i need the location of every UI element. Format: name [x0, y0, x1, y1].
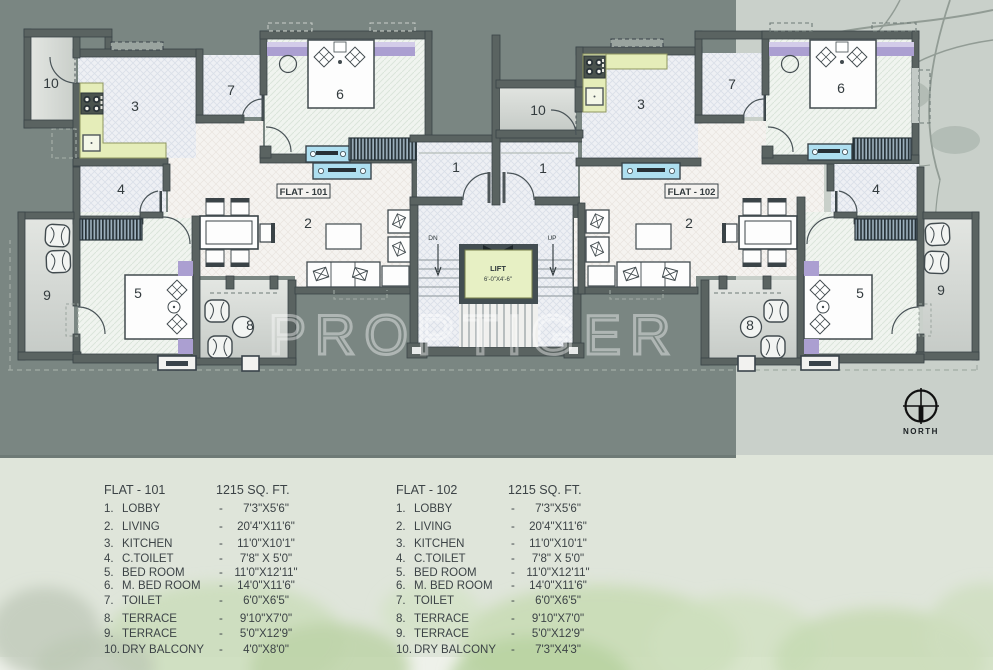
svg-text:5.: 5.	[396, 567, 406, 579]
svg-text:20'4"X11'6": 20'4"X11'6"	[237, 521, 295, 533]
svg-text:-: -	[511, 580, 515, 592]
svg-text:-: -	[219, 644, 223, 656]
svg-text:FLAT - 101: FLAT - 101	[280, 187, 329, 198]
svg-text:7'3"X5'6": 7'3"X5'6"	[535, 503, 581, 515]
svg-text:-: -	[219, 628, 223, 640]
svg-text:7'3"X5'6": 7'3"X5'6"	[243, 503, 289, 515]
svg-text:LOBBY: LOBBY	[414, 503, 453, 515]
svg-text:20'4"X11'6": 20'4"X11'6"	[529, 521, 587, 533]
svg-text:7.: 7.	[396, 595, 406, 607]
svg-text:5: 5	[856, 285, 864, 301]
svg-text:3: 3	[637, 96, 645, 112]
svg-text:8: 8	[746, 317, 754, 333]
svg-text:1: 1	[452, 159, 460, 175]
svg-text:9'10"X7'0": 9'10"X7'0"	[240, 613, 292, 625]
svg-text:11'0"X10'1": 11'0"X10'1"	[237, 538, 295, 550]
svg-text:-: -	[511, 628, 515, 640]
svg-text:-: -	[219, 613, 223, 625]
svg-text:BED ROOM: BED ROOM	[414, 567, 477, 579]
svg-text:-: -	[511, 553, 515, 565]
svg-text:DN: DN	[428, 235, 438, 242]
svg-text:1.: 1.	[104, 503, 114, 515]
svg-text:9'10"X7'0": 9'10"X7'0"	[532, 613, 584, 625]
svg-text:TERRACE: TERRACE	[414, 628, 469, 640]
svg-text:14'0"X11'6": 14'0"X11'6"	[237, 580, 295, 592]
svg-text:1.: 1.	[396, 503, 406, 515]
svg-text:3: 3	[131, 98, 139, 114]
svg-text:10.: 10.	[396, 644, 412, 656]
svg-text:1215 SQ. FT.: 1215 SQ. FT.	[216, 483, 290, 497]
svg-text:3.: 3.	[396, 538, 406, 550]
svg-text:-: -	[219, 580, 223, 592]
svg-text:10: 10	[43, 75, 59, 91]
svg-text:TOILET: TOILET	[414, 595, 454, 607]
svg-text:KITCHEN: KITCHEN	[414, 538, 464, 550]
svg-text:9.: 9.	[104, 628, 114, 640]
svg-text:6'0"X6'5": 6'0"X6'5"	[535, 595, 581, 607]
svg-text:-: -	[511, 538, 515, 550]
svg-text:TOILET: TOILET	[122, 595, 162, 607]
svg-text:1: 1	[539, 160, 547, 176]
svg-text:KITCHEN: KITCHEN	[122, 538, 172, 550]
svg-text:-: -	[219, 595, 223, 607]
svg-text:BED ROOM: BED ROOM	[122, 567, 185, 579]
svg-text:4: 4	[117, 181, 125, 197]
svg-text:10: 10	[530, 102, 546, 118]
svg-text:2: 2	[685, 215, 693, 231]
svg-text:-: -	[219, 538, 223, 550]
svg-text:-: -	[511, 567, 515, 579]
svg-text:9: 9	[43, 287, 51, 303]
svg-text:4.: 4.	[396, 553, 406, 565]
svg-text:7'8" X 5'0": 7'8" X 5'0"	[240, 553, 292, 565]
svg-text:C.TOILET: C.TOILET	[414, 553, 466, 565]
svg-text:UP: UP	[547, 235, 556, 242]
svg-text:2: 2	[304, 215, 312, 231]
svg-text:5'0"X12'9": 5'0"X12'9"	[240, 628, 292, 640]
svg-text:11'0"X12'11": 11'0"X12'11"	[526, 567, 589, 579]
svg-text:FLAT - 101: FLAT - 101	[104, 483, 165, 497]
svg-text:10.: 10.	[104, 644, 120, 656]
svg-text:8: 8	[246, 317, 254, 333]
svg-text:6'-0"X4'-6": 6'-0"X4'-6"	[484, 277, 512, 283]
svg-text:NORTH: NORTH	[903, 427, 939, 436]
svg-text:LOBBY: LOBBY	[122, 503, 161, 515]
svg-text:2.: 2.	[104, 521, 114, 533]
svg-text:TERRACE: TERRACE	[414, 613, 469, 625]
svg-text:5.: 5.	[104, 567, 114, 579]
svg-text:14'0"X11'6": 14'0"X11'6"	[529, 580, 587, 592]
svg-text:5: 5	[134, 285, 142, 301]
svg-text:TERRACE: TERRACE	[122, 628, 177, 640]
svg-text:5'0"X12'9": 5'0"X12'9"	[532, 628, 584, 640]
svg-text:FLAT - 102: FLAT - 102	[396, 483, 457, 497]
svg-text:7: 7	[227, 82, 235, 98]
svg-text:3.: 3.	[104, 538, 114, 550]
svg-text:M. BED ROOM: M. BED ROOM	[122, 580, 201, 592]
svg-text:1215 SQ. FT.: 1215 SQ. FT.	[508, 483, 582, 497]
svg-text:-: -	[219, 553, 223, 565]
svg-text:C.TOILET: C.TOILET	[122, 553, 174, 565]
svg-text:LIFT: LIFT	[490, 264, 506, 273]
svg-text:11'0"X10'1": 11'0"X10'1"	[529, 538, 587, 550]
svg-text:9: 9	[937, 282, 945, 298]
svg-text:-: -	[511, 503, 515, 515]
svg-text:11'0"X12'11": 11'0"X12'11"	[234, 567, 297, 579]
svg-text:-: -	[511, 613, 515, 625]
svg-text:-: -	[219, 503, 223, 515]
svg-text:6: 6	[336, 86, 344, 102]
svg-text:FLAT - 102: FLAT - 102	[668, 187, 716, 198]
svg-text:PROPTIGER: PROPTIGER	[269, 303, 680, 366]
svg-text:6.: 6.	[104, 580, 114, 592]
svg-text:7: 7	[728, 76, 736, 92]
svg-text:DRY BALCONY: DRY BALCONY	[414, 644, 496, 656]
svg-text:M. BED ROOM: M. BED ROOM	[414, 580, 493, 592]
svg-text:2.: 2.	[396, 521, 406, 533]
svg-text:8.: 8.	[104, 613, 114, 625]
svg-text:TERRACE: TERRACE	[122, 613, 177, 625]
svg-text:-: -	[511, 595, 515, 607]
svg-text:-: -	[511, 521, 515, 533]
svg-text:8.: 8.	[396, 613, 406, 625]
svg-text:LIVING: LIVING	[414, 521, 452, 533]
svg-text:4: 4	[872, 181, 880, 197]
svg-text:-: -	[511, 644, 515, 656]
svg-text:LIVING: LIVING	[122, 521, 160, 533]
svg-text:4'0"X8'0": 4'0"X8'0"	[243, 644, 289, 656]
svg-text:7'3"X4'3": 7'3"X4'3"	[535, 644, 581, 656]
svg-text:9.: 9.	[396, 628, 406, 640]
svg-text:6'0"X6'5": 6'0"X6'5"	[243, 595, 289, 607]
svg-text:4.: 4.	[104, 553, 114, 565]
svg-text:-: -	[219, 567, 223, 579]
svg-text:-: -	[219, 521, 223, 533]
svg-text:7.: 7.	[104, 595, 114, 607]
svg-text:6.: 6.	[396, 580, 406, 592]
svg-text:7'8" X 5'0": 7'8" X 5'0"	[532, 553, 584, 565]
svg-text:DRY BALCONY: DRY BALCONY	[122, 644, 204, 656]
svg-text:6: 6	[837, 80, 845, 96]
